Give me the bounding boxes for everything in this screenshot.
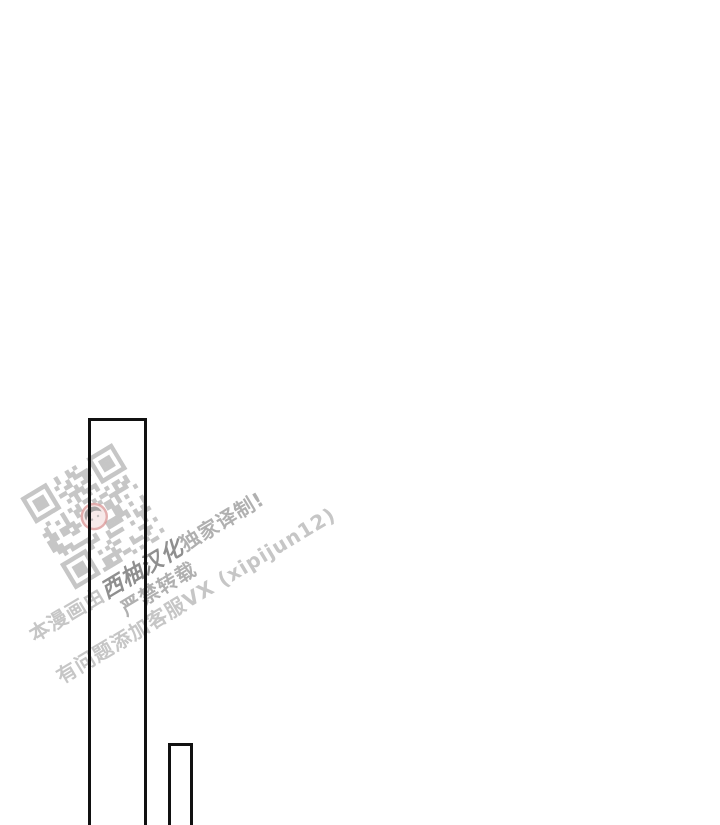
comic-page: 本漫画由西柚汉化独家译制! 严禁转载 有问题添加客服VX (xipijun12) <box>0 0 720 825</box>
comic-panel-border-narrow <box>168 743 193 825</box>
translator-watermark: 本漫画由西柚汉化独家译制! 严禁转载 有问题添加客服VX (xipijun12) <box>0 314 423 691</box>
comic-panel-border-tall <box>88 418 147 825</box>
